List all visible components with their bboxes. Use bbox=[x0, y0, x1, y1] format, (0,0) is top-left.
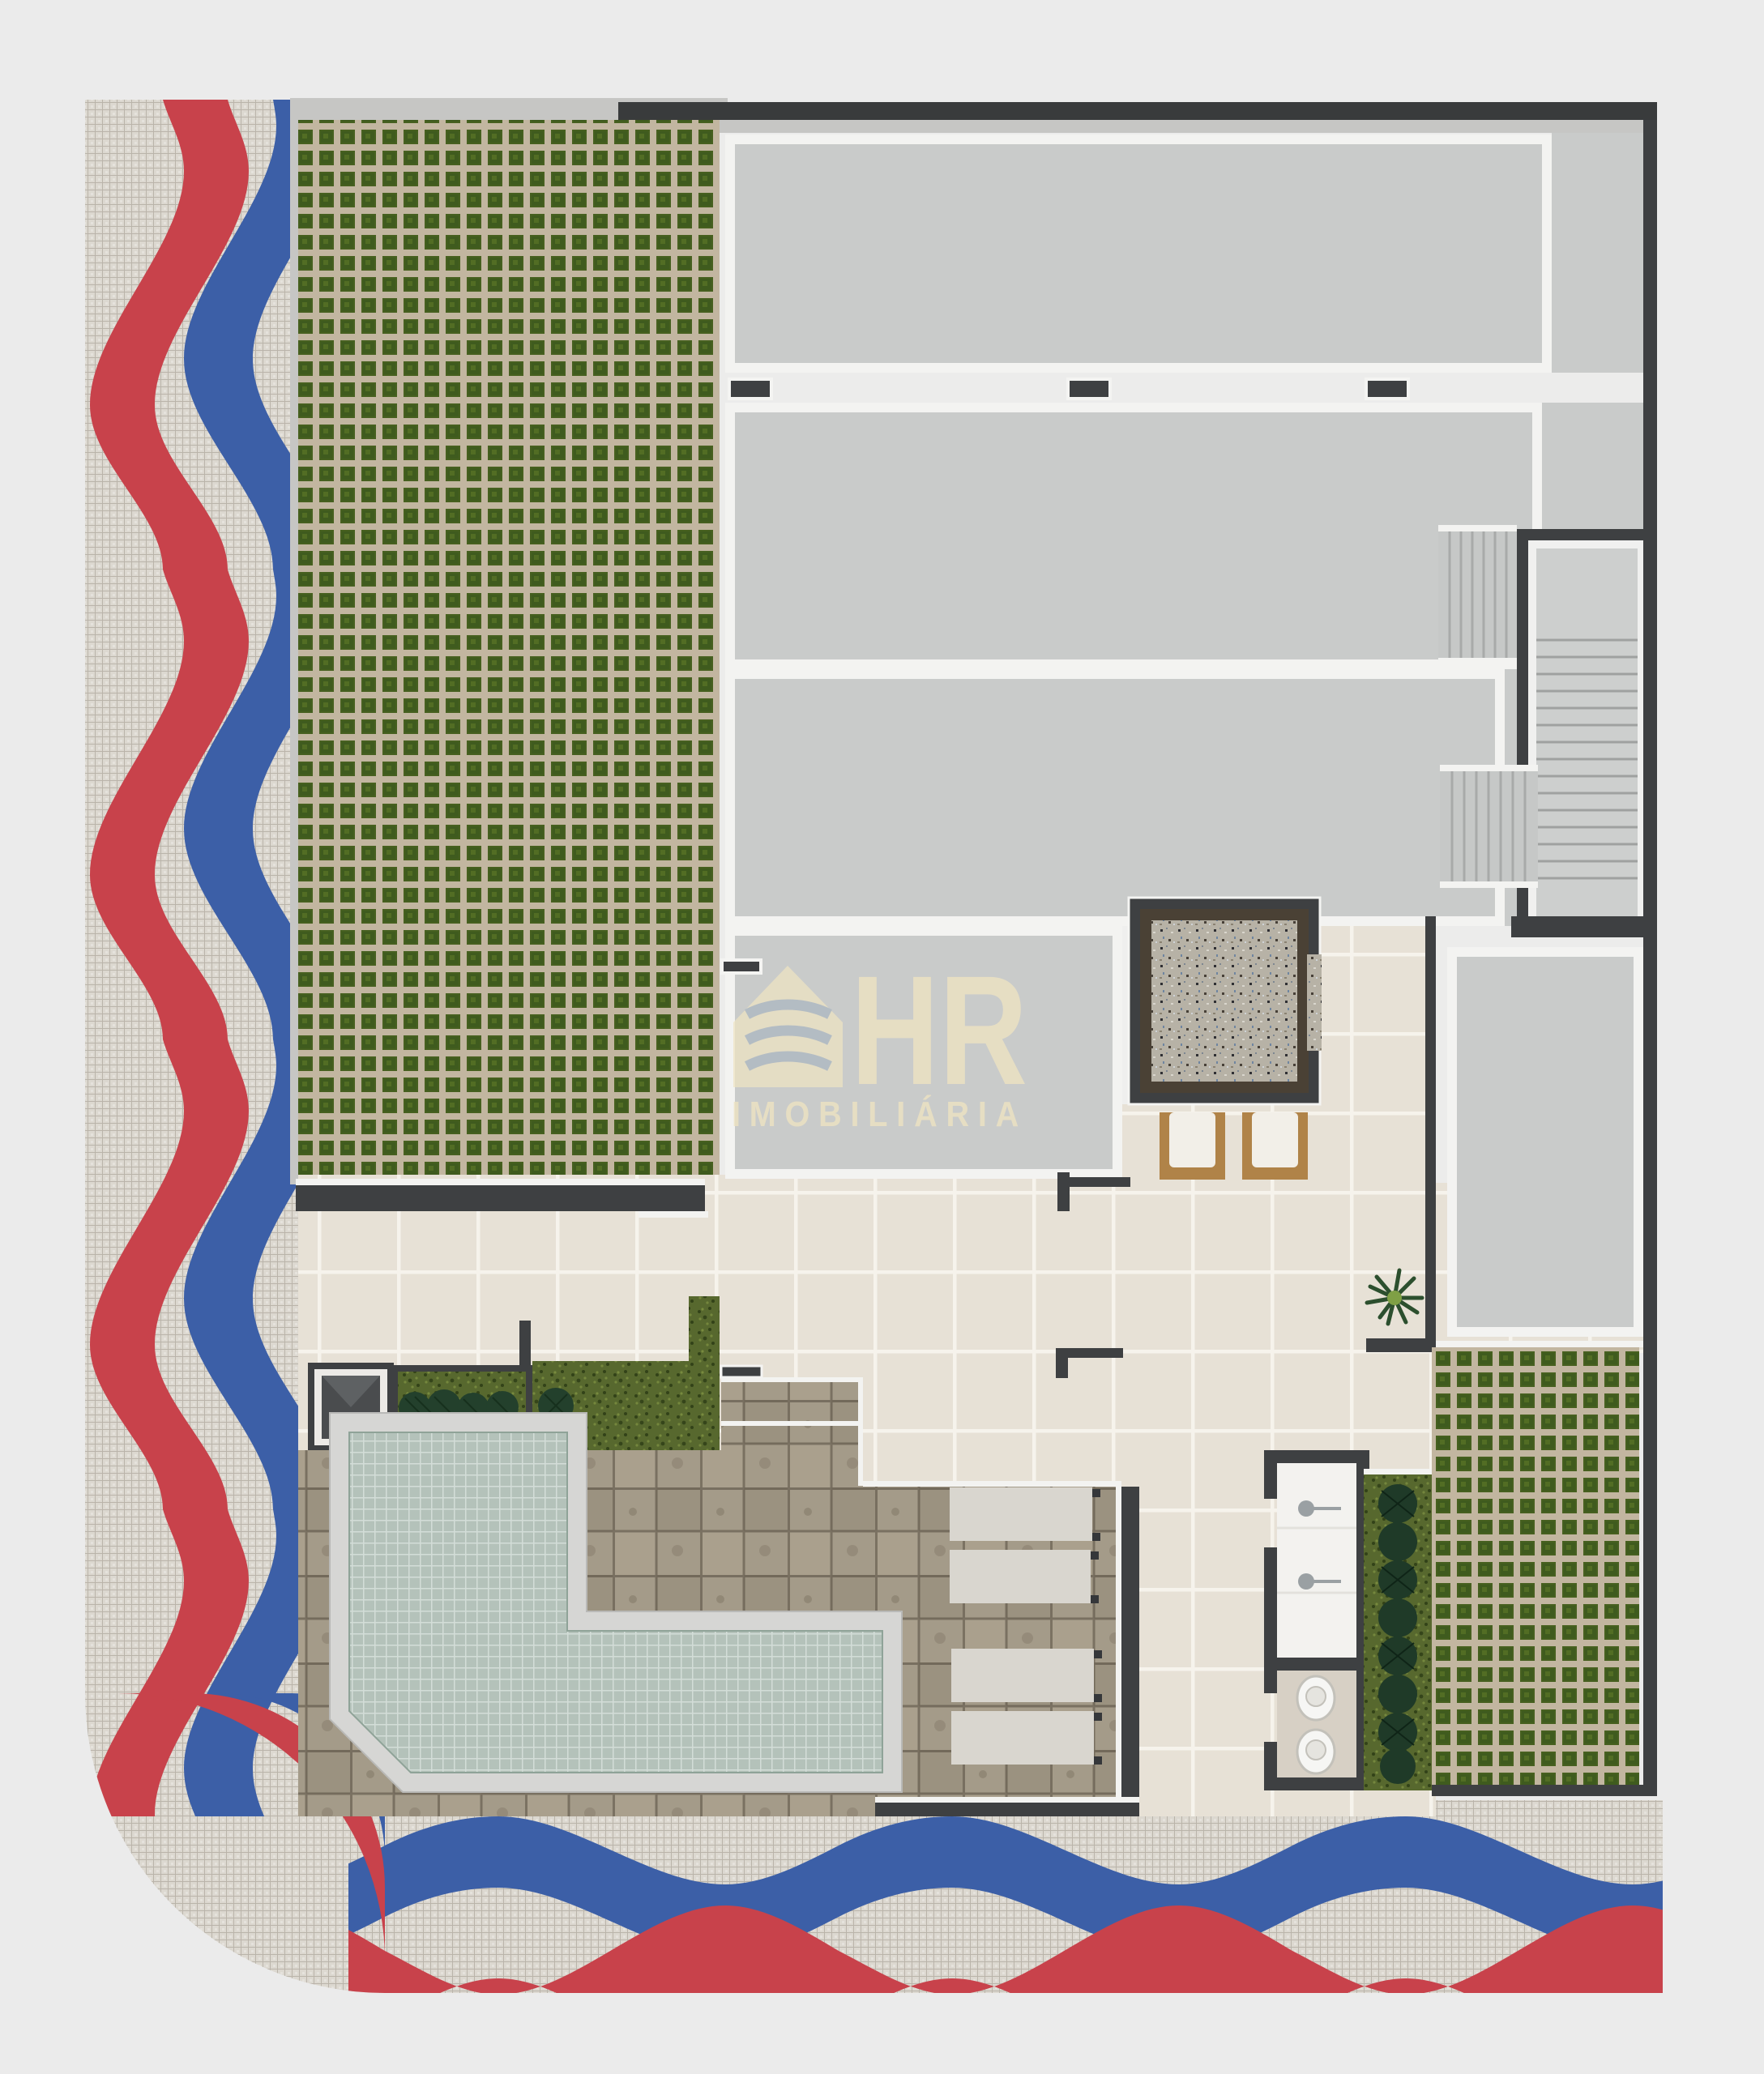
slab-1 bbox=[735, 144, 1542, 363]
right-garden-pavers bbox=[1432, 1347, 1639, 1785]
window-3 bbox=[1366, 379, 1408, 399]
window-2 bbox=[1068, 379, 1110, 399]
slab-3 bbox=[725, 669, 1505, 926]
shower-room-floor bbox=[1277, 1463, 1356, 1658]
wall-stub-a bbox=[1057, 1172, 1070, 1211]
plan-canvas: HR IMOBILIÁRIA bbox=[0, 0, 1764, 2074]
slab-2 bbox=[735, 412, 1532, 659]
deck-wall-bottom bbox=[875, 1803, 1139, 1816]
wall-corridor-right bbox=[1425, 916, 1436, 1352]
wall-stub-b bbox=[1070, 1177, 1130, 1187]
right-slab bbox=[1457, 957, 1634, 1327]
wall-trim bbox=[296, 1179, 705, 1185]
wall-stub-d bbox=[1068, 1348, 1123, 1358]
stair-b-nosing-bottom bbox=[1440, 881, 1538, 888]
slab-1-right bbox=[1552, 133, 1643, 373]
sun-lounger bbox=[950, 1550, 1099, 1603]
armchair bbox=[1242, 1112, 1308, 1180]
stair-core-slab bbox=[1536, 548, 1638, 918]
sidewalk-wave-vertical bbox=[85, 100, 298, 1816]
wall-under-stairs bbox=[1511, 916, 1657, 937]
palm-planter bbox=[1364, 1469, 1432, 1790]
wall-corridor-bottom-l bbox=[1366, 1338, 1436, 1352]
watermark-subtitle-text: IMOBILIÁRIA bbox=[732, 1094, 1027, 1134]
lobby-granite-floor bbox=[1151, 920, 1297, 1082]
entrance-lobby bbox=[1129, 898, 1322, 1104]
watermark-brand-text: HR bbox=[851, 943, 1027, 1117]
garden-edge-wall bbox=[296, 1185, 705, 1211]
stair-a-nosing-top bbox=[1438, 525, 1517, 531]
bath-block bbox=[1264, 1450, 1369, 1790]
stair-b-treads bbox=[1452, 771, 1525, 881]
deck-wall-right bbox=[1121, 1487, 1139, 1816]
deck-wall-trim bbox=[875, 1797, 1139, 1803]
palm-planter-trim bbox=[1364, 1469, 1432, 1474]
sun-lounger bbox=[951, 1711, 1102, 1765]
building-parapet-top bbox=[618, 102, 1657, 120]
corridor-right-of-lobby bbox=[1320, 926, 1425, 1185]
stair-b-nosing-top bbox=[1440, 765, 1538, 771]
right-garden-wall-bottom bbox=[1432, 1785, 1657, 1796]
sundeck-trim-right bbox=[1116, 1487, 1121, 1816]
step-nosing bbox=[639, 1211, 708, 1218]
lobby-door-threshold bbox=[1307, 954, 1322, 1051]
sundeck-trim-top bbox=[863, 1481, 1121, 1487]
slab-3-trim-left bbox=[725, 669, 735, 926]
building-curb-top bbox=[720, 120, 1643, 133]
garden-grass-pavers bbox=[298, 120, 720, 1184]
deck-mat bbox=[721, 1366, 762, 1377]
grass-paver-garden-left bbox=[290, 98, 729, 1184]
wall-stub-c bbox=[1056, 1348, 1068, 1378]
sidewalk-wave-horizontal bbox=[348, 1816, 1663, 1993]
slab-3-trim-top bbox=[725, 669, 1505, 679]
deck-step-edge bbox=[858, 1377, 863, 1486]
grass-paver-garden-right bbox=[1432, 1341, 1657, 1796]
window-4 bbox=[722, 960, 761, 973]
garden-curb-left bbox=[290, 98, 298, 1184]
slab-3-trim-bottom bbox=[725, 916, 1505, 926]
right-garden-trim bbox=[1436, 1341, 1653, 1347]
window-1 bbox=[729, 379, 771, 399]
sun-lounger bbox=[951, 1649, 1102, 1702]
stair-a-nosing-bottom bbox=[1438, 658, 1517, 664]
site-plan-render: HR IMOBILIÁRIA bbox=[0, 0, 1764, 2074]
sun-lounger bbox=[950, 1487, 1100, 1541]
deck-step-nosing-1 bbox=[721, 1377, 863, 1382]
armchair bbox=[1160, 1112, 1225, 1180]
walkway-strip bbox=[720, 373, 1643, 403]
deck-step-nosing-2 bbox=[721, 1421, 863, 1426]
slab-2-right bbox=[1542, 403, 1643, 529]
building-wall-right bbox=[1643, 120, 1657, 1796]
